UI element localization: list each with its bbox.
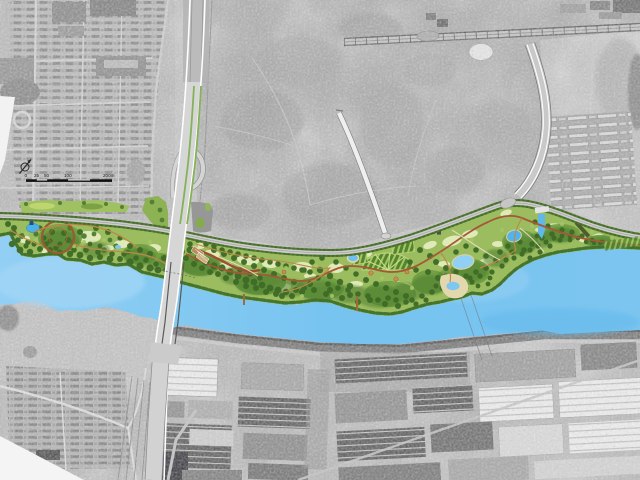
svg-text:100: 100	[64, 173, 72, 178]
svg-text:200m: 200m	[103, 173, 115, 178]
svg-text:25: 25	[34, 173, 40, 178]
svg-text:50: 50	[44, 173, 50, 178]
svg-text:0: 0	[25, 173, 28, 178]
